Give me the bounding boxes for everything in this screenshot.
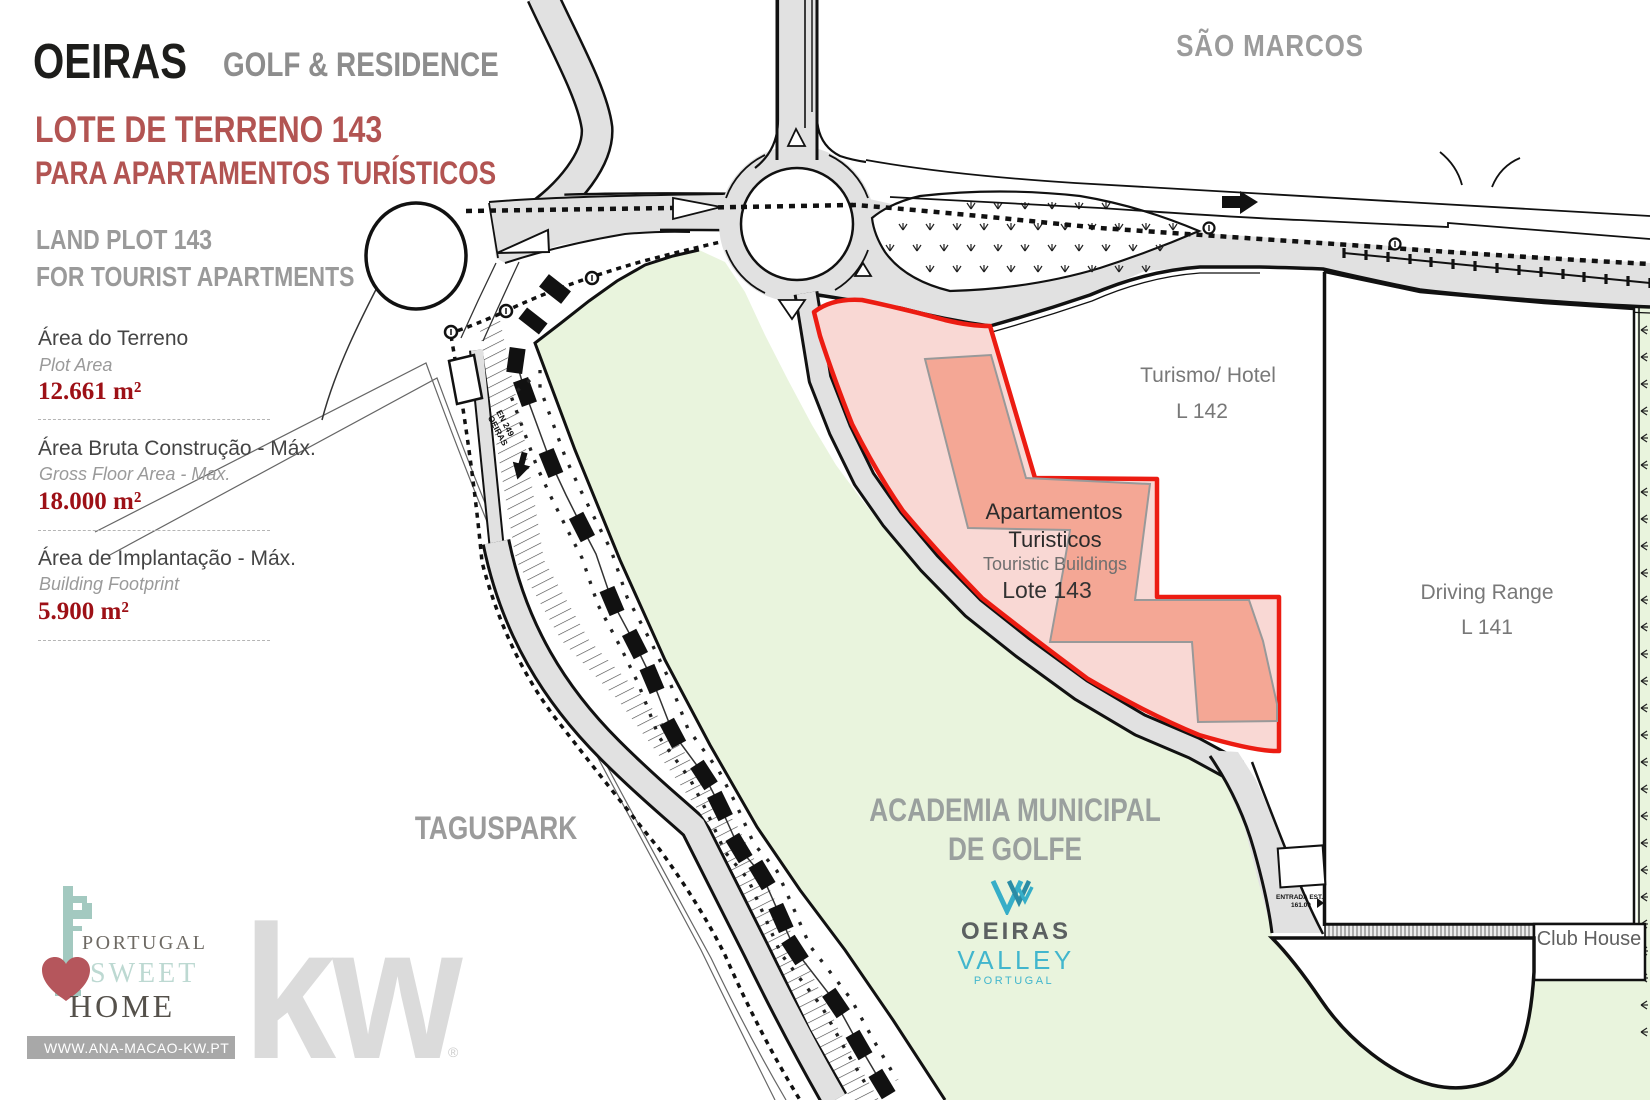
- svg-text:161.00: 161.00: [1291, 902, 1311, 909]
- svg-text:ENTRADA EST.: ENTRADA EST.: [1276, 894, 1323, 901]
